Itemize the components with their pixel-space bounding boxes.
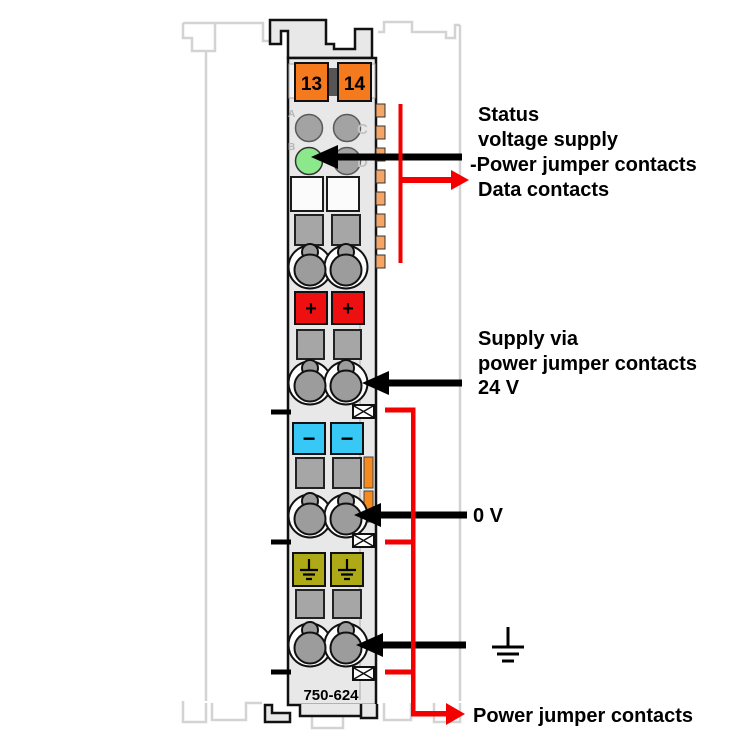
power-jumper-contact-symbol xyxy=(353,667,374,680)
label-0v: 0 V xyxy=(473,505,504,527)
data-contact-tab xyxy=(376,170,385,183)
adjacent-module-outline-bottom-left xyxy=(183,701,262,722)
wire-entry-right xyxy=(333,590,361,618)
clamp-hole-icon xyxy=(331,371,362,402)
bottom-right-foot xyxy=(361,704,377,718)
bottom-center-notch xyxy=(300,704,362,716)
label-supply-power-jumper: power jumper contacts xyxy=(478,353,697,375)
led-letter-b: B xyxy=(288,142,295,153)
arrow-data-contacts xyxy=(399,170,470,190)
bottom-rail-hook xyxy=(265,705,290,722)
wire-entry-right xyxy=(333,458,361,488)
data-contacts-span-line xyxy=(399,104,403,263)
power-jumper-blade-left xyxy=(271,410,291,415)
earth-ground-symbol xyxy=(492,627,524,661)
label-data-contacts: Data contacts xyxy=(478,179,609,201)
terminal-number-13: 13 xyxy=(301,74,322,95)
led-letter-c: C xyxy=(357,121,368,138)
adjacent-module-outline-top-right xyxy=(378,22,460,38)
data-contact-tab xyxy=(376,255,385,268)
data-contact-tabs xyxy=(376,104,385,268)
power-jumper-contact-symbol xyxy=(353,534,374,547)
part-number: 750-624 xyxy=(303,687,359,704)
plus-sign: + xyxy=(342,298,354,320)
data-contact-tab xyxy=(376,214,385,227)
mounting-clip xyxy=(270,20,372,58)
led-letter-a: A xyxy=(288,109,295,120)
terminal-module-diagram: 13 14 A B C D + + xyxy=(0,0,750,750)
plus-sign: + xyxy=(305,298,317,320)
label-24v: 24 V xyxy=(478,377,520,399)
label-status: Status xyxy=(478,104,539,126)
adjacent-module-clip-pocket-left xyxy=(183,23,215,51)
clamp-hole-icon xyxy=(331,504,362,535)
clamp-hole-icon xyxy=(331,633,362,664)
terminal-divider xyxy=(329,68,337,96)
wire-entry-left xyxy=(295,215,323,245)
clamp-hole-icon xyxy=(295,504,326,535)
clamp-hole-icon xyxy=(295,371,326,402)
data-contact-tab xyxy=(376,104,385,117)
data-contact-tab xyxy=(376,126,385,139)
minus-sign: − xyxy=(303,426,316,451)
arrow-status-led xyxy=(311,145,462,169)
wire-entry-right xyxy=(334,330,361,359)
label-supply-via: Supply via xyxy=(478,328,579,350)
adjacent-module-outline-top-left xyxy=(183,23,281,41)
power-jumper-blade-left xyxy=(271,670,291,675)
clamp-hole-icon xyxy=(295,633,326,664)
minus-sign: − xyxy=(341,426,354,451)
data-contact-tab xyxy=(376,236,385,249)
wire-entry-left xyxy=(296,590,324,618)
clamp-hole-icon xyxy=(295,255,326,286)
wire-entry-left xyxy=(297,330,324,359)
power-jumper-contact-symbol xyxy=(353,405,374,418)
red-callout-lines xyxy=(385,104,469,725)
clamp-hole-icon xyxy=(331,255,362,286)
wiring-diagram: 13 14 A B C D + + xyxy=(0,0,750,750)
label-power-jumper-contacts-status: -Power jumper contacts xyxy=(470,154,697,176)
label-voltage-supply: voltage supply xyxy=(478,129,619,151)
data-contact-tab xyxy=(376,192,385,205)
release-latch-upper xyxy=(364,457,373,488)
marker-blank-left xyxy=(291,177,323,211)
wire-entry-right xyxy=(332,215,360,245)
terminal-number-14: 14 xyxy=(344,74,366,95)
wire-entry-left xyxy=(296,458,324,488)
power-jumper-bracket xyxy=(385,408,416,714)
led-indicator-b-green-lit xyxy=(296,148,323,175)
label-power-jumper-contacts: Power jumper contacts xyxy=(473,705,693,727)
power-jumper-blade-left xyxy=(271,540,291,545)
marker-blank-right xyxy=(327,177,359,211)
led-indicator-a xyxy=(296,115,323,142)
